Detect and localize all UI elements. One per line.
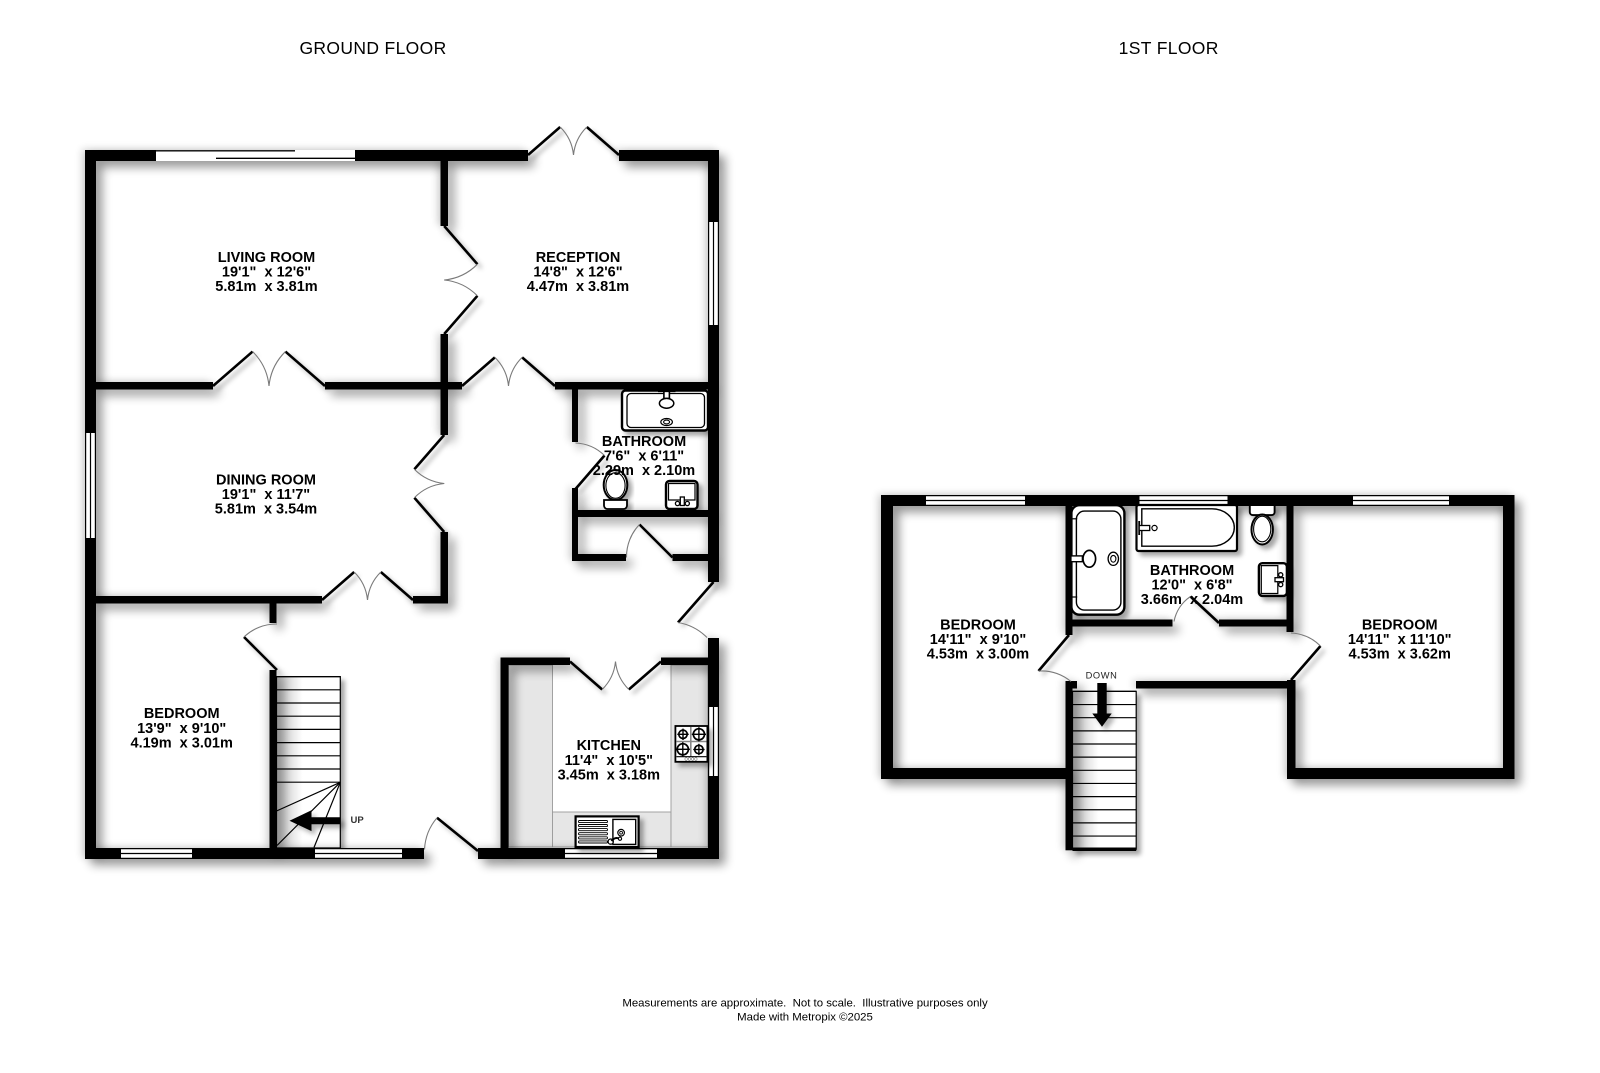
svg-text:BEDROOM13'9" x 9'10"4.19m x: BEDROOM13'9" x 9'10"4.19m x 3.01m — [131, 706, 233, 751]
svg-text:GROUND FLOOR: GROUND FLOOR — [299, 38, 446, 58]
svg-text:Measurements are approximate.: Measurements are approximate. Not to sca… — [622, 998, 988, 1010]
svg-text:DINING ROOM19'1" x 11'7"5.81m: DINING ROOM19'1" x 11'7"5.81m x 3.54m — [215, 472, 317, 517]
svg-text:DOWN: DOWN — [1086, 671, 1118, 681]
svg-text:RECEPTION14'8" x 12'6"4.47m: RECEPTION14'8" x 12'6"4.47m x 3.81m — [527, 250, 629, 295]
svg-text:BATHROOM7'6" x 6'11"2.29m x: BATHROOM7'6" x 6'11"2.29m x 2.10m — [593, 434, 695, 479]
svg-text:OOOO: OOOO — [684, 756, 698, 761]
svg-text:BEDROOM14'11" x 11'10"4.53m: BEDROOM14'11" x 11'10"4.53m x 3.62m — [1348, 617, 1452, 662]
svg-text:1ST FLOOR: 1ST FLOOR — [1119, 38, 1219, 58]
svg-text:BEDROOM14'11" x 9'10"4.53m x: BEDROOM14'11" x 9'10"4.53m x 3.00m — [927, 617, 1029, 662]
svg-text:BATHROOM12'0" x 6'8"3.66m x: BATHROOM12'0" x 6'8"3.66m x 2.04m — [1141, 563, 1243, 608]
svg-text:Made with Metropix ©2025: Made with Metropix ©2025 — [737, 1011, 873, 1023]
svg-text:LIVING ROOM19'1" x 12'6"5.81m: LIVING ROOM19'1" x 12'6"5.81m x 3.81m — [215, 250, 317, 295]
svg-text:UP: UP — [351, 815, 365, 826]
